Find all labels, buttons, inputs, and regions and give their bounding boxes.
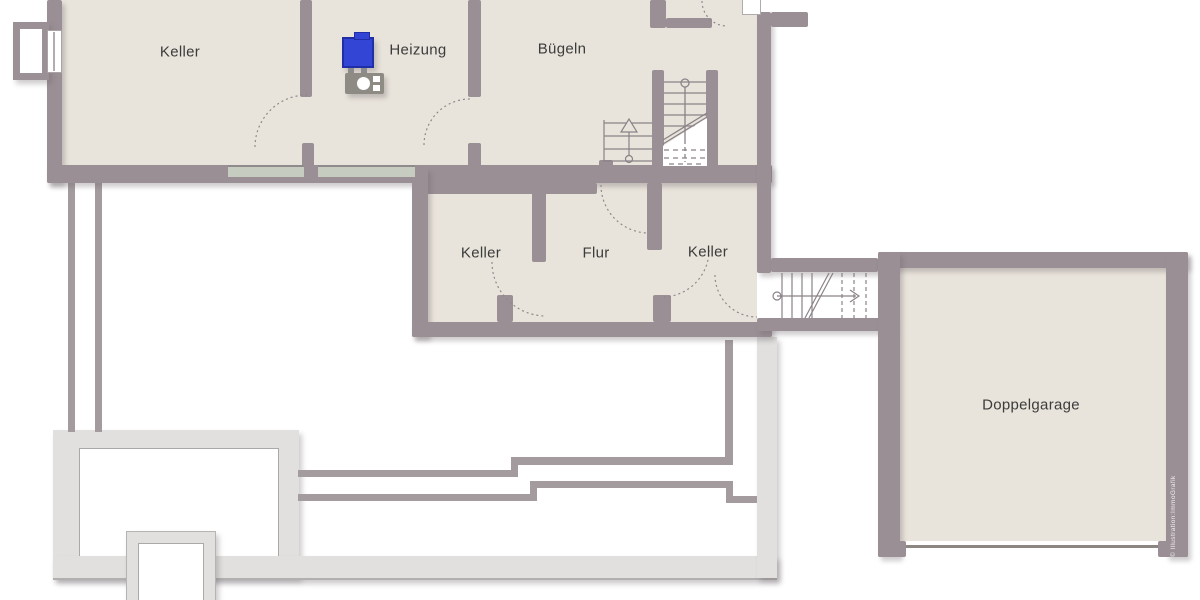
retaining-line <box>511 457 733 465</box>
heater-control-button <box>373 85 380 91</box>
heater-control-dial <box>357 77 370 90</box>
right-walkway <box>757 337 777 578</box>
external-staircase <box>773 273 866 318</box>
heater-tank <box>342 37 374 68</box>
wall-stair-left <box>652 70 664 167</box>
room-label-buegeln: Bügeln <box>538 41 587 58</box>
garage-door-line <box>906 545 1158 548</box>
wall-divider-keller-flur-stub <box>497 295 513 322</box>
wall-divider-flur-keller <box>647 183 662 250</box>
retaining-line <box>298 494 537 501</box>
heater-control-button <box>373 76 380 82</box>
floorplan: Keller Heizung Bügeln Keller Flur Keller… <box>0 0 1200 600</box>
wall-garage-left <box>878 252 900 557</box>
retaining-line <box>530 481 733 488</box>
retaining-line <box>95 182 102 432</box>
wall-garage-stub-bl <box>878 541 906 557</box>
left-window-pane <box>53 32 55 71</box>
wall-keller-heizung <box>300 0 312 97</box>
wall-top-corner-v <box>650 0 666 28</box>
wall-lower-bottom <box>412 322 772 337</box>
wall-keller-heizung-stub <box>302 143 314 167</box>
wall-divider-keller-flur <box>532 183 546 262</box>
watermark: © Illustration:ImmoGrafik <box>1170 447 1177 557</box>
wall-lower-left <box>412 168 428 337</box>
wall-top-corner-h <box>666 18 712 28</box>
room-label-heizung: Heizung <box>389 42 446 59</box>
wall-corridor-bottom <box>757 318 893 331</box>
wall-stair-right <box>706 70 718 167</box>
heater-tank-cap <box>354 32 370 40</box>
wall-right-top-stub <box>771 12 808 27</box>
wall-divider-flur-keller-stub <box>653 295 671 322</box>
room-label-keller-right: Keller <box>688 244 728 261</box>
room-label-doppelgarage: Doppelgarage <box>982 397 1080 414</box>
retaining-line <box>298 470 518 477</box>
retaining-line <box>726 496 757 503</box>
wall-corridor-top <box>771 258 878 272</box>
wall-smallstair-stub <box>599 160 613 183</box>
room-label-flur: Flur <box>582 245 609 262</box>
lightshaft-box-interior <box>138 543 204 600</box>
window-strip <box>318 165 415 177</box>
retaining-line <box>68 182 75 432</box>
room-label-keller-left: Keller <box>461 245 501 262</box>
wall-lower-top <box>412 183 597 194</box>
wall-heizung-buegeln-stub <box>468 143 481 167</box>
direction-arrow <box>850 290 859 302</box>
window-strip <box>228 165 304 177</box>
wall-right-exterior <box>757 12 771 273</box>
wall-garage-top <box>878 252 1188 268</box>
top-right-door-opening <box>742 0 761 15</box>
wall-left-exterior <box>47 0 62 183</box>
wall-heizung-buegeln <box>468 0 481 97</box>
room-label-keller-top: Keller <box>160 44 200 61</box>
lightwell-window-box <box>13 22 49 80</box>
retaining-line <box>725 340 733 465</box>
